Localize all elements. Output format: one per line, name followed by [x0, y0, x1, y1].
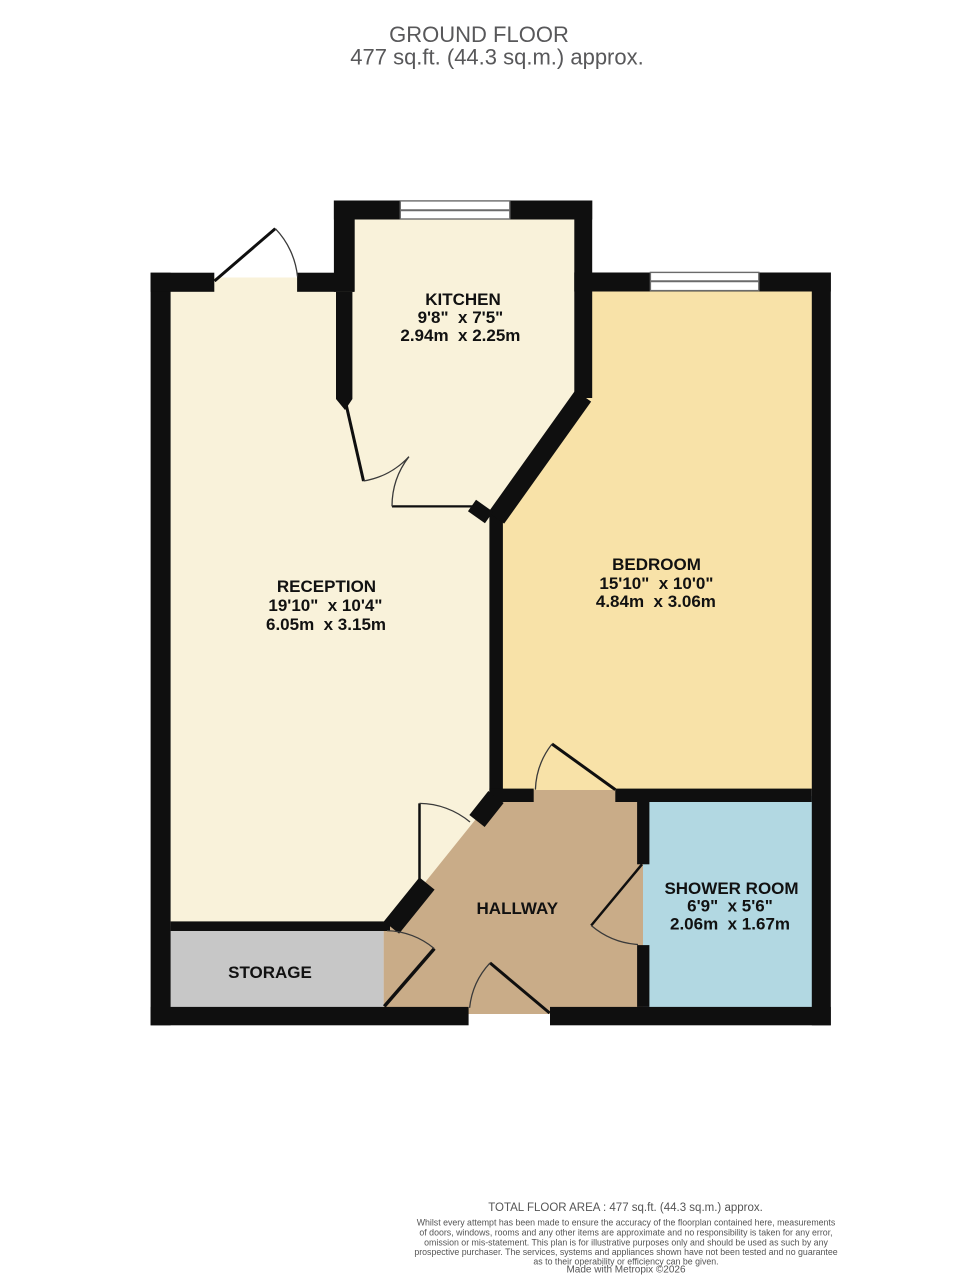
svg-text:KITCHEN: KITCHEN	[425, 290, 501, 309]
svg-text:2.06m x 1.67m: 2.06m x 1.67m	[670, 915, 790, 934]
svg-text:RECEPTION: RECEPTION	[277, 577, 376, 596]
svg-text:19'10" x 10'4": 19'10" x 10'4"	[268, 596, 382, 615]
svg-text:9'8" x 7'5": 9'8" x 7'5"	[418, 308, 504, 327]
svg-text:BEDROOM: BEDROOM	[612, 555, 701, 574]
svg-text:omission or mis-statement. Thi: omission or mis-statement. This plan is …	[424, 1237, 828, 1247]
svg-text:GROUND FLOOR: GROUND FLOOR	[389, 22, 569, 47]
svg-text:prospective purchaser. The ser: prospective purchaser. The services, sys…	[414, 1247, 837, 1257]
svg-text:6'9" x 5'6": 6'9" x 5'6"	[687, 897, 773, 916]
svg-text:2.94m x 2.25m: 2.94m x 2.25m	[400, 326, 520, 345]
svg-text:of doors, windows, rooms and a: of doors, windows, rooms and any other i…	[419, 1228, 832, 1238]
svg-text:TOTAL FLOOR AREA : 477 sq.ft.: TOTAL FLOOR AREA : 477 sq.ft. (44.3 sq.m…	[488, 1202, 763, 1214]
svg-text:STORAGE: STORAGE	[228, 963, 312, 982]
svg-text:Made with Metropix ©2026: Made with Metropix ©2026	[566, 1264, 686, 1275]
svg-text:SHOWER ROOM: SHOWER ROOM	[664, 879, 798, 898]
svg-text:15'10" x 10'0": 15'10" x 10'0"	[599, 574, 713, 593]
svg-text:4.84m x 3.06m: 4.84m x 3.06m	[596, 592, 716, 611]
svg-text:477 sq.ft. (44.3 sq.m.) approx: 477 sq.ft. (44.3 sq.m.) approx.	[350, 45, 643, 70]
svg-text:HALLWAY: HALLWAY	[477, 899, 559, 918]
svg-text:Whilst every attempt has been: Whilst every attempt has been made to en…	[417, 1218, 836, 1228]
svg-text:6.05m x 3.15m: 6.05m x 3.15m	[266, 615, 386, 634]
